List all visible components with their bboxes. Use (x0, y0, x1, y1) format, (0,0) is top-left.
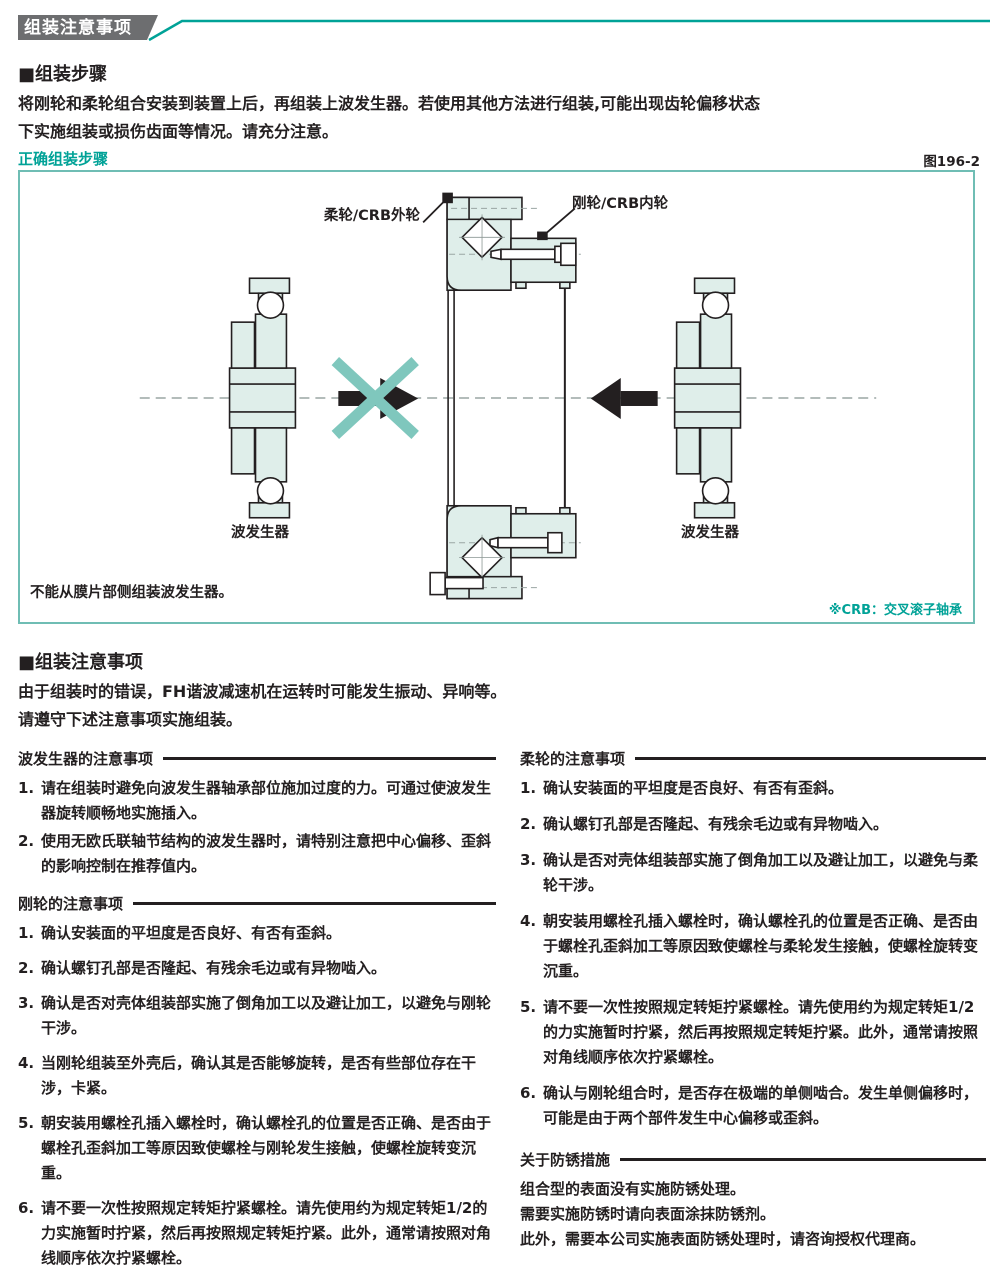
assembly-steps-line2: 下实施组装或损伤齿面等情况。请充分注意。 (18, 118, 338, 142)
assembly-steps-line1: 将刚轮和柔轮组合安装到装置上后，再组装上波发生器。若使用其他方法进行组装,可能出… (18, 90, 760, 114)
section-title: 关于防锈措施 (520, 1149, 610, 1170)
left-column: 波发生器的注意事项 1. 请在组装时避免向波发生器轴承部位施加过度的力。可通过使… (18, 748, 496, 1275)
wave-generator-left-drawing (230, 278, 296, 517)
list-item: 6. 请不要一次性按照规定转矩拧紧螺栓。请先使用约为规定转矩1/2的力实施暂时拧… (18, 1196, 496, 1271)
list-item: 3. 确认是否对壳体组装部实施了倒角加工以及避让加工，以避免与柔轮干涉。 (520, 848, 986, 898)
rust-line: 组合型的表面没有实施防锈处理。 (520, 1177, 986, 1202)
list-item: 4. 当刚轮组装至外壳后，确认其是否能够旋转，是否有些部位存在干涉，卡紧。 (18, 1051, 496, 1101)
figure-number: 图196-2 (923, 150, 980, 170)
section-rule (163, 757, 496, 760)
list-item: 5. 朝安装用螺栓孔插入螺栓时，确认螺栓孔的位置是否正确、是否由于螺栓孔歪斜加工… (18, 1111, 496, 1186)
wave-generator-right-label: 波发生器 (660, 521, 760, 542)
section-title: 柔轮的注意事项 (520, 748, 625, 769)
right-column: 柔轮的注意事项 1. 确认安装面的平坦度是否良好、有否有歪斜。 2. 确认螺钉孔… (520, 748, 986, 1252)
central-unit-drawing (430, 193, 581, 598)
correct-direction-arrow (591, 378, 658, 419)
section-rule (635, 757, 986, 760)
figure-box (18, 170, 975, 624)
flexspline-section-header: 柔轮的注意事项 (520, 748, 986, 769)
rust-line: 需要实施防锈时请向表面涂抹防锈剂。 (520, 1202, 986, 1227)
rust-line: 此外，需要本公司实施表面防锈处理时，请咨询授权代理商。 (520, 1227, 986, 1252)
list-item: 1. 确认安装面的平坦度是否良好、有否有歪斜。 (520, 776, 986, 801)
flexspline-callout-label: 柔轮/CRB外轮 (300, 204, 420, 225)
assembly-steps-heading: ■组装步骤 (18, 60, 107, 86)
list-item: 2. 确认螺钉孔部是否隆起、有残余毛边或有异物啮入。 (18, 956, 496, 981)
precautions-line2: 请遵守下述注意事项实施组装。 (18, 706, 242, 730)
list-item: 1. 请在组装时避免向波发生器轴承部位施加过度的力。可通过使波发生器旋转顺畅地实… (18, 776, 496, 826)
precautions-line1: 由于组装时的错误，FH谐波减速机在运转时可能发生振动、异响等。 (18, 678, 506, 702)
circular-spline-section-header: 刚轮的注意事项 (18, 893, 496, 914)
flexspline-leader-line (423, 201, 444, 222)
flexspline-marker (443, 193, 452, 202)
rust-section-header: 关于防锈措施 (520, 1149, 986, 1170)
list-item: 4. 朝安装用螺栓孔插入螺栓时，确认螺栓孔的位置是否正确、是否由于螺栓孔歪斜加工… (520, 909, 986, 984)
wave-generator-section-header: 波发生器的注意事项 (18, 748, 496, 769)
header-band-graphic (0, 0, 1000, 50)
section-rule (620, 1158, 986, 1161)
page-title: 组装注意事项 (24, 16, 144, 40)
list-item: 5. 请不要一次性按照规定转矩拧紧螺栓。请先使用约为规定转矩1/2的力实施暂时拧… (520, 995, 986, 1070)
list-item: 2. 使用无欧氏联轴节结构的波发生器时，请特别注意把中心偏移、歪斜的影响控制在推… (18, 829, 496, 879)
list-item: 3. 确认是否对壳体组装部实施了倒角加工以及避让加工，以避免与刚轮干涉。 (18, 991, 496, 1041)
circular-spline-callout-label: 刚轮/CRB内轮 (572, 192, 668, 213)
section-title: 波发生器的注意事项 (18, 748, 153, 769)
circular-spline-leader-line (545, 208, 575, 234)
list-item: 2. 确认螺钉孔部是否隆起、有残余毛边或有异物啮入。 (520, 812, 986, 837)
list-item: 6. 确认与刚轮组合时，是否存在极端的单侧啮合。发生单侧偏移时，可能是由于两个部… (520, 1081, 986, 1131)
catalog-page: 组装注意事项 ■组装步骤 将刚轮和柔轮组合安装到装置上后，再组装上波发生器。若使… (0, 0, 1000, 1275)
assembly-figure-drawing (20, 172, 973, 622)
figure-note: 不能从膜片部侧组装波发生器。 (30, 581, 233, 602)
list-item: 1. 确认安装面的平坦度是否良好、有否有歪斜。 (18, 921, 496, 946)
precautions-heading: ■组装注意事项 (18, 648, 143, 674)
header-teal-line (149, 21, 990, 40)
section-rule (133, 902, 496, 905)
wave-generator-right-drawing (675, 278, 741, 517)
section-title: 刚轮的注意事项 (18, 893, 123, 914)
wave-generator-left-label: 波发生器 (210, 521, 310, 542)
crb-footnote: ※CRB：交叉滚子轴承 (829, 599, 962, 618)
figure-caption: 正确组装步骤 (18, 148, 108, 169)
